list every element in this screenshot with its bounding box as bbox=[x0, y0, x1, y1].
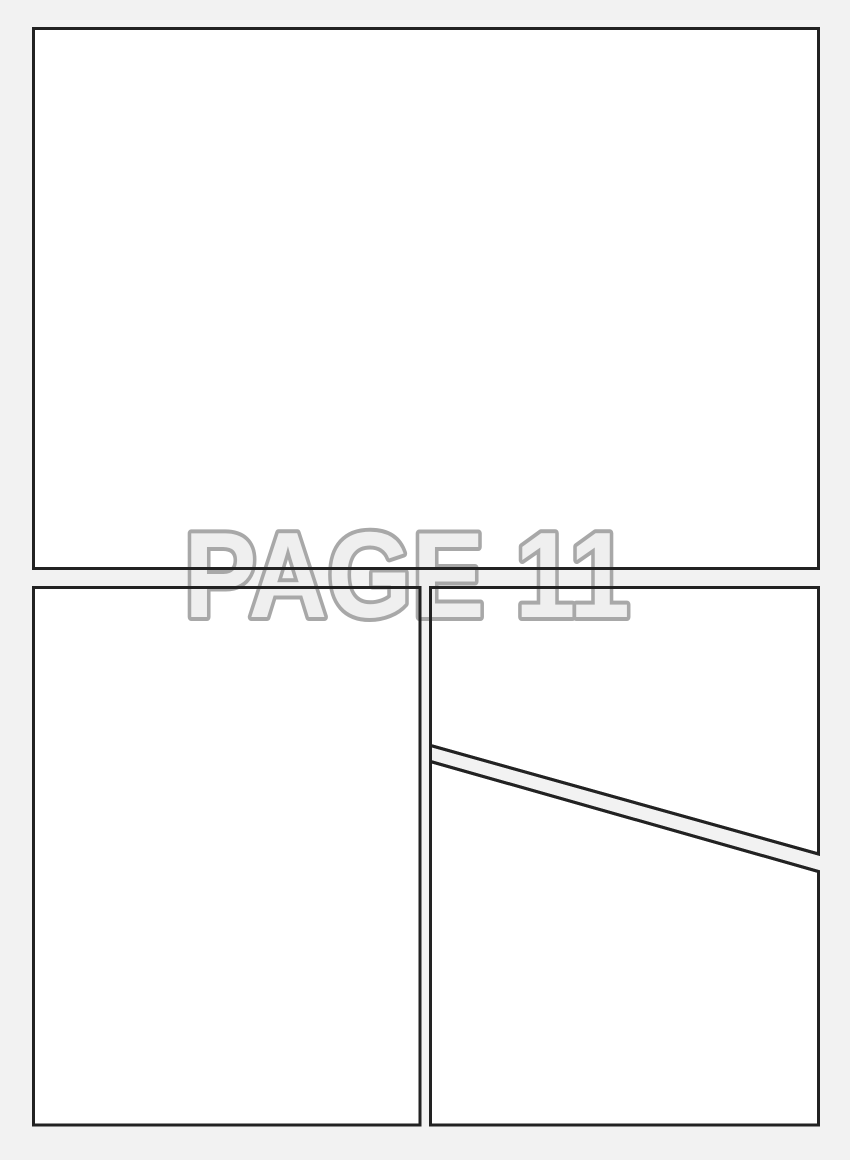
page-number-watermark: PAGE 11 bbox=[184, 507, 630, 643]
panel-bottom-left bbox=[34, 588, 421, 1126]
panel-top bbox=[34, 29, 819, 569]
page-background: { "page": { "watermark_label": "PAGE 11"… bbox=[0, 0, 850, 1160]
panel-layout-canvas: PAGE 11 bbox=[0, 0, 850, 1160]
comic-template-sheet: PAGE 11 bbox=[0, 0, 850, 1160]
